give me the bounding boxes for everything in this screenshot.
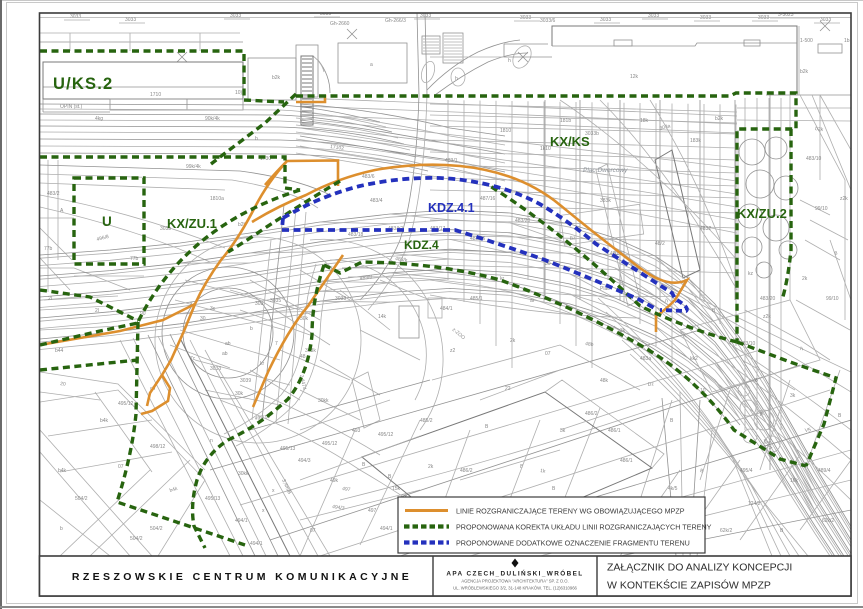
svg-text:99/10: 99/10 [826, 296, 839, 302]
svg-text:RZESZOWSKIE CENTRUM KOMUNIKACY: RZESZOWSKIE CENTRUM KOMUNIKACYJNE [72, 571, 412, 583]
svg-text:n: n [210, 438, 213, 444]
svg-text:3033/6: 3033/6 [540, 18, 556, 24]
svg-text:486/1: 486/1 [608, 428, 621, 434]
svg-text:494/1: 494/1 [235, 518, 248, 524]
svg-text:12k: 12k [630, 74, 639, 80]
svg-text:KX/ZU.1: KX/ZU.1 [167, 216, 217, 231]
svg-text:1810a: 1810a [210, 196, 224, 202]
svg-text:483/20: 483/20 [760, 296, 776, 302]
svg-text:kr: kr [260, 361, 265, 367]
svg-text:3033: 3033 [335, 296, 346, 302]
svg-text:77b: 77b [130, 256, 139, 262]
svg-text:483/20: 483/20 [515, 218, 531, 224]
svg-text:484/1: 484/1 [440, 306, 453, 312]
svg-text:483a: 483a [640, 356, 651, 362]
svg-text:497: 497 [368, 508, 377, 514]
svg-text:1-500: 1-500 [800, 38, 813, 44]
svg-text:W KONTEKŚCIE ZAPISÓW MPZP: W KONTEKŚCIE ZAPISÓW MPZP [607, 579, 771, 592]
svg-text:497: 497 [342, 486, 351, 493]
svg-text:49k: 49k [330, 478, 339, 484]
svg-text:18k: 18k [640, 118, 649, 124]
svg-text:b2k: b2k [272, 75, 281, 81]
svg-text:48k: 48k [600, 378, 609, 384]
svg-text:495/13: 495/13 [280, 446, 296, 452]
svg-text:77b: 77b [44, 246, 53, 252]
svg-text:ab: ab [225, 341, 231, 347]
svg-text:2k: 2k [510, 338, 516, 344]
svg-text:4kg: 4kg [95, 116, 103, 122]
svg-text:48b: 48b [585, 341, 594, 348]
svg-text:2k: 2k [428, 464, 434, 470]
svg-text:KX/KS: KX/KS [550, 134, 590, 149]
svg-text:1b: 1b [844, 38, 850, 44]
svg-text:48/2: 48/2 [655, 241, 665, 247]
svg-text:07: 07 [545, 351, 551, 357]
svg-text:h: h [508, 58, 511, 64]
svg-text:KDZ.4.1: KDZ.4.1 [428, 201, 475, 215]
svg-text:2l: 2l [95, 308, 99, 314]
svg-text:486/2: 486/2 [460, 468, 473, 474]
svg-text:383k: 383k [600, 198, 611, 204]
svg-text:485/1: 485/1 [470, 296, 483, 302]
svg-text:z2k: z2k [840, 196, 848, 202]
svg-text:b: b [60, 526, 63, 532]
svg-text:07: 07 [118, 464, 124, 470]
svg-text:b2k: b2k [815, 126, 824, 133]
svg-text:a: a [370, 62, 373, 68]
svg-text:1710: 1710 [150, 92, 161, 98]
svg-text:z2k: z2k [763, 314, 771, 320]
svg-text:495/12: 495/12 [118, 401, 134, 407]
svg-text:APA CZECH_DULIŃSKI_WRÓBEL: APA CZECH_DULIŃSKI_WRÓBEL [446, 569, 583, 578]
svg-text:KDZ.4: KDZ.4 [404, 238, 439, 252]
svg-text:b44: b44 [55, 348, 64, 354]
svg-text:483/1: 483/1 [445, 158, 458, 164]
svg-text:504/2: 504/2 [150, 526, 163, 532]
svg-text:486/1: 486/1 [620, 458, 633, 464]
svg-text:Gh-266/3: Gh-266/3 [385, 18, 406, 24]
svg-text:z2: z2 [450, 348, 456, 354]
svg-text:30: 30 [200, 316, 206, 322]
svg-text:483/4: 483/4 [370, 198, 383, 204]
svg-text:495/12: 495/12 [322, 441, 338, 447]
svg-text:3033: 3033 [230, 13, 241, 19]
svg-text:PROPONOWANA KOREKTA UKŁADU LIN: PROPONOWANA KOREKTA UKŁADU LINII ROZGRAN… [456, 523, 712, 532]
svg-text:3033: 3033 [70, 14, 81, 20]
svg-text:b2k: b2k [800, 69, 809, 75]
svg-text:4k/5: 4k/5 [668, 486, 678, 492]
svg-text:b4k: b4k [100, 418, 109, 424]
svg-text:AGENCJA PROJEKTOWA "ARCHITEKTU: AGENCJA PROJEKTOWA "ARCHITEKTURA" SP. Z … [461, 579, 568, 584]
svg-text:3033: 3033 [648, 13, 659, 19]
svg-text:504/2: 504/2 [75, 496, 88, 502]
svg-text:489/4: 489/4 [818, 468, 831, 474]
svg-text:494/1: 494/1 [380, 526, 393, 532]
svg-text:487/16: 487/16 [480, 196, 496, 202]
svg-text:485/2: 485/2 [420, 418, 433, 424]
svg-text:495/12: 495/12 [378, 432, 394, 438]
svg-text:483/6: 483/6 [362, 174, 375, 180]
svg-text:PROPONOWANE DODATKOWE OZNACZEN: PROPONOWANE DODATKOWE OZNACZENIE FRAGMEN… [456, 539, 690, 548]
svg-text:495/4: 495/4 [740, 468, 753, 474]
svg-text:ZAŁĄCZNIK DO ANALIZY KONCEPCJI: ZAŁĄCZNIK DO ANALIZY KONCEPCJI [607, 562, 792, 574]
svg-text:UL. WRÓBLEWSKIEGO 3/2, 31-148: UL. WRÓBLEWSKIEGO 3/2, 31-148 KRAKÓW. TE… [453, 586, 577, 591]
svg-text:7: 7 [275, 341, 278, 347]
svg-text:jk: jk [759, 411, 764, 417]
svg-text:4832: 4832 [700, 226, 711, 232]
svg-text:U/KS.2: U/KS.2 [53, 75, 113, 93]
svg-text:99/10: 99/10 [815, 206, 828, 212]
svg-text:KX/ZU.2: KX/ZU.2 [737, 206, 787, 221]
svg-text:181b: 181b [560, 118, 571, 124]
svg-text:7c: 7c [190, 356, 196, 362]
svg-text:30k: 30k [235, 391, 244, 397]
svg-text:b: b [255, 136, 258, 142]
svg-text:2l: 2l [48, 296, 52, 302]
svg-text:10): 10) [235, 90, 243, 96]
svg-text:62k/2: 62k/2 [822, 518, 834, 524]
svg-text:U: U [102, 214, 112, 229]
svg-text:30kk: 30kk [238, 471, 249, 477]
svg-text:504/2: 504/2 [130, 536, 143, 542]
svg-text:LINIE ROZGRANICZAJĄCE TERENY W: LINIE ROZGRANICZAJĄCE TERENY WG OBOWIĄZU… [456, 507, 685, 516]
svg-text:h: h [455, 76, 458, 82]
svg-text:483/10: 483/10 [806, 156, 822, 162]
svg-text:kk2: kk2 [690, 356, 698, 362]
svg-text:62k/2: 62k/2 [720, 528, 732, 534]
svg-text:1810: 1810 [500, 128, 511, 134]
svg-text:3035: 3035 [270, 298, 281, 304]
svg-text:kz: kz [748, 271, 754, 277]
svg-text:3k: 3k [790, 393, 796, 399]
svg-text:99k/4k: 99k/4k [186, 164, 201, 170]
svg-text:20: 20 [60, 381, 67, 388]
svg-text:16k: 16k [790, 478, 799, 484]
svg-text:494/3: 494/3 [298, 458, 311, 464]
svg-text:493: 493 [352, 428, 361, 434]
svg-text:3033: 3033 [420, 13, 431, 19]
svg-text:ab: ab [222, 351, 228, 357]
svg-text:2k: 2k [802, 276, 808, 282]
svg-text:14k: 14k [378, 314, 387, 320]
svg-text:b2k: b2k [715, 116, 724, 122]
svg-text:3c: 3c [210, 306, 216, 312]
svg-text:07: 07 [310, 528, 316, 534]
svg-text:498/12: 498/12 [150, 444, 166, 450]
svg-text:b: b [250, 326, 253, 332]
svg-text:90k/4k: 90k/4k [205, 116, 220, 122]
svg-text:30kk: 30kk [318, 398, 329, 404]
svg-text:483/18: 483/18 [348, 232, 364, 238]
svg-text:b4k: b4k [58, 468, 67, 474]
svg-text:486/2: 486/2 [585, 411, 598, 417]
svg-text:183k: 183k [690, 138, 701, 144]
svg-text:Plac Dworcowy: Plac Dworcowy [583, 167, 628, 174]
svg-text:495/13: 495/13 [205, 496, 221, 502]
svg-text:3039: 3039 [240, 378, 251, 384]
svg-text:124/2: 124/2 [748, 501, 761, 507]
svg-text:Gh-2660: Gh-2660 [330, 21, 350, 27]
svg-text:483/2: 483/2 [47, 191, 60, 197]
svg-text:V5: V5 [804, 427, 811, 434]
svg-text:494/1: 494/1 [250, 541, 263, 547]
